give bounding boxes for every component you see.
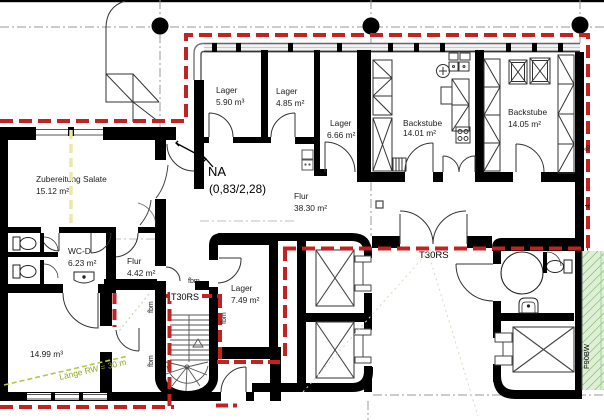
svg-text:14.05 m²: 14.05 m² — [508, 119, 541, 129]
svg-text:14.99 m³: 14.99 m³ — [30, 349, 63, 359]
svg-text:fbm: fbm — [188, 278, 200, 285]
svg-text:15.12 m²: 15.12 m² — [36, 186, 69, 196]
svg-text:14.01 m²: 14.01 m² — [403, 128, 436, 138]
svg-text:4: 4 — [585, 204, 592, 208]
svg-text:Backstube: Backstube — [508, 107, 547, 117]
svg-text:6.66 m²: 6.66 m² — [327, 130, 356, 140]
svg-text:WC-D: WC-D — [68, 246, 91, 256]
svg-text:38.30 m²: 38.30 m² — [294, 203, 327, 213]
svg-text:7.49 m²: 7.49 m² — [231, 295, 260, 305]
svg-text:T30RS: T30RS — [171, 292, 199, 302]
svg-text:fbm: fbm — [221, 312, 228, 324]
svg-text:6.23 m²: 6.23 m² — [68, 258, 97, 268]
svg-text:NA: NA — [208, 164, 226, 179]
svg-text:fb: fb — [585, 145, 592, 151]
svg-text:fbm: fbm — [148, 355, 155, 367]
svg-text:fbm: fbm — [148, 301, 155, 313]
svg-text:Flur: Flur — [127, 256, 142, 266]
svg-text:4.42 m²: 4.42 m² — [127, 268, 156, 278]
svg-text:4.85 m²: 4.85 m² — [276, 98, 305, 108]
svg-text:Lager: Lager — [276, 86, 298, 96]
svg-text:F90BW: F90BW — [582, 343, 591, 369]
svg-text:Lager: Lager — [216, 85, 238, 95]
svg-text:5.90 m³: 5.90 m³ — [216, 97, 245, 107]
svg-text:T30RS: T30RS — [419, 250, 449, 261]
svg-text:Lager: Lager — [231, 283, 253, 293]
svg-text:Lager: Lager — [330, 118, 352, 128]
svg-text:Flur: Flur — [294, 191, 309, 201]
svg-text:(0,83/2,28): (0,83/2,28) — [209, 182, 266, 196]
svg-text:Backstube: Backstube — [403, 118, 442, 128]
